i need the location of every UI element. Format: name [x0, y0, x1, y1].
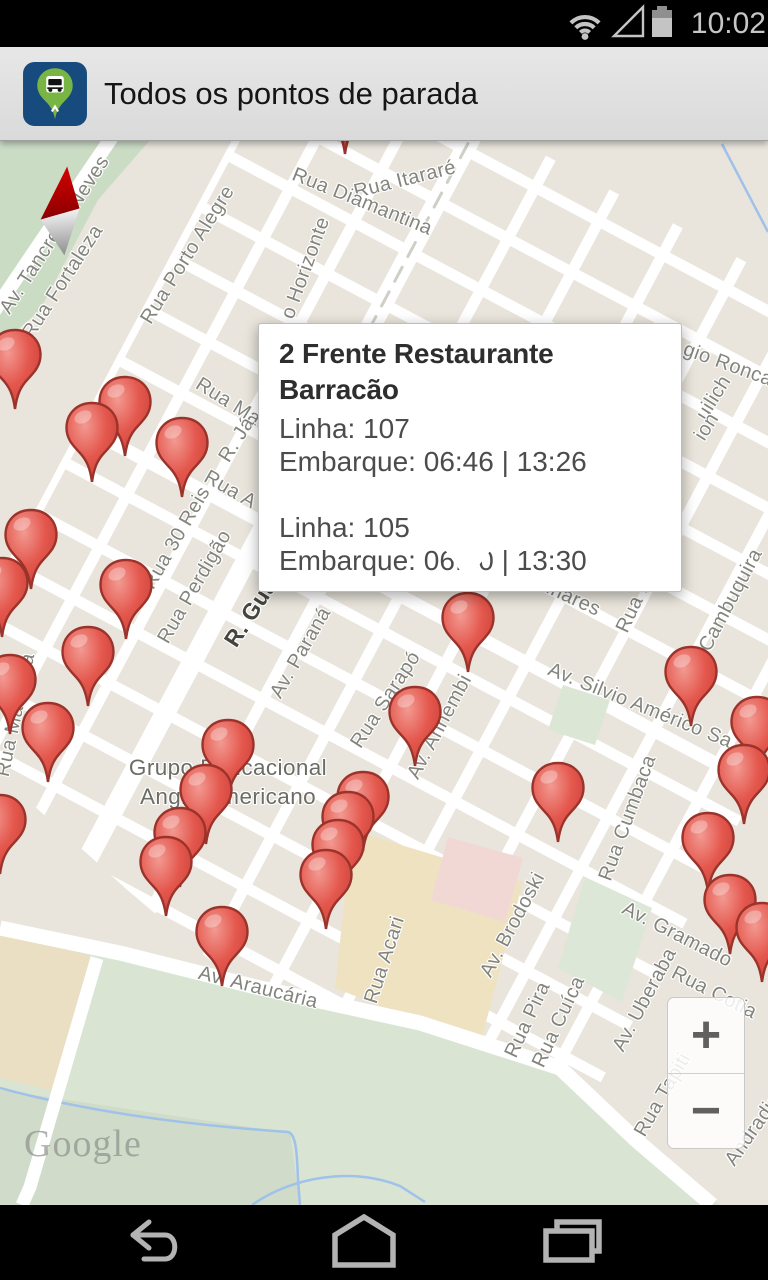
battery-icon — [649, 1, 675, 46]
zoom-in-button[interactable]: + — [668, 998, 744, 1074]
wifi-icon — [563, 1, 607, 46]
clock: 10:02 — [691, 7, 766, 41]
selected-map-pin[interactable] — [440, 591, 496, 675]
info-window[interactable]: 2 Frente Restaurante Barracão Linha: 107… — [258, 323, 682, 592]
map-pin[interactable] — [60, 625, 116, 709]
map-pin[interactable] — [20, 701, 76, 785]
zoom-control: + − — [667, 997, 745, 1149]
boarding-times: Embarque: 06:46 | 13:26 — [279, 445, 661, 478]
map-view[interactable]: 2 Frente Restaurante Barracão Linha: 107… — [0, 140, 768, 1205]
map-pin[interactable] — [317, 140, 373, 157]
map-pin[interactable] — [64, 401, 120, 485]
map-pin[interactable] — [154, 416, 210, 500]
signal-triangle-icon — [610, 1, 646, 46]
map-pin[interactable] — [530, 761, 586, 845]
home-icon[interactable] — [329, 1213, 399, 1274]
back-icon[interactable] — [125, 1219, 187, 1270]
bus-stop-pin-icon — [22, 61, 88, 127]
spacer-line — [279, 478, 661, 511]
status-icons — [563, 1, 675, 46]
map-pin[interactable] — [0, 793, 28, 877]
line-number: Linha: 107 — [279, 412, 661, 445]
recents-icon[interactable] — [541, 1218, 603, 1269]
map-pin[interactable] — [298, 848, 354, 932]
line-number: Linha: 105 — [279, 511, 661, 544]
stop-name: 2 Frente Restaurante Barracão — [279, 336, 661, 408]
map-pin[interactable] — [0, 556, 30, 640]
google-logo: Google — [24, 1122, 142, 1166]
page-title: Todos os pontos de parada — [104, 76, 478, 112]
map-pin[interactable] — [138, 835, 194, 919]
zoom-out-button[interactable]: − — [668, 1074, 744, 1149]
map-pin[interactable] — [0, 328, 43, 412]
action-bar: Todos os pontos de parada — [0, 47, 768, 141]
compass-icon[interactable] — [36, 165, 94, 266]
map-pin[interactable] — [387, 685, 443, 769]
map-pin[interactable] — [734, 901, 768, 985]
map-pin[interactable] — [663, 645, 719, 729]
android-screen: 10:02 Todos os pontos de parada — [0, 0, 768, 1280]
status-bar: 10:02 — [0, 0, 768, 47]
navigation-bar — [0, 1205, 768, 1280]
map-pin[interactable] — [194, 905, 250, 989]
